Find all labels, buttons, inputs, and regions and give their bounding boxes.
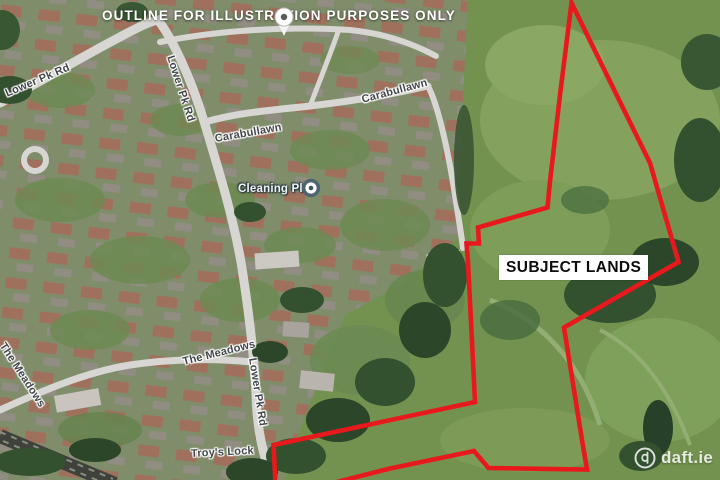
aerial-map: OUTLINE FOR ILLUSTRATION PURPOSES ONLY C… — [0, 0, 720, 480]
poi-marker-icon — [301, 178, 321, 198]
pin-marker-icon — [271, 5, 297, 37]
daft-logo-icon — [634, 447, 656, 469]
outline-path — [274, 3, 679, 480]
subject-lands-label: SUBJECT LANDS — [499, 255, 648, 280]
watermark: daft.ie — [634, 447, 713, 469]
watermark-text: daft.ie — [661, 448, 713, 468]
subject-lands-outline — [0, 0, 720, 480]
